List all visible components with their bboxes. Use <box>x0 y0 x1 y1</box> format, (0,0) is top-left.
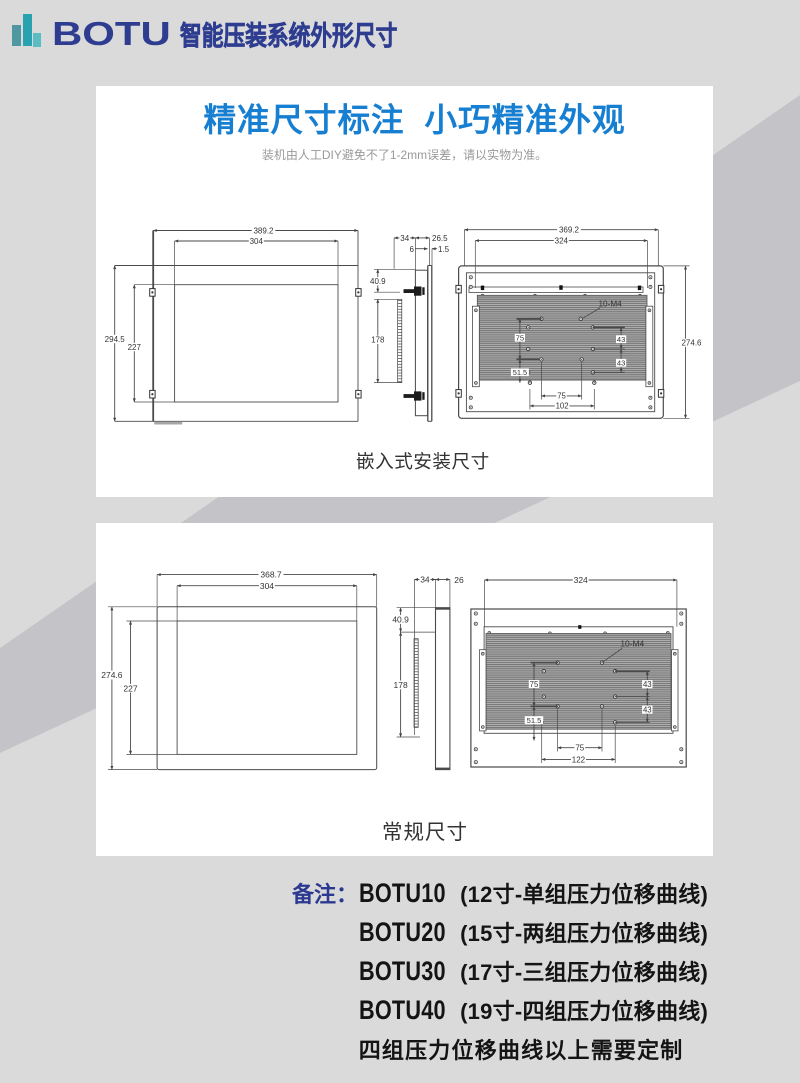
svg-text:43: 43 <box>617 359 625 368</box>
svg-text:368.7: 368.7 <box>260 570 282 580</box>
svg-text:304: 304 <box>250 237 264 246</box>
svg-text:43: 43 <box>643 680 652 689</box>
svg-text:178: 178 <box>394 680 408 690</box>
svg-text:34: 34 <box>400 234 409 243</box>
svg-text:304: 304 <box>260 581 274 591</box>
svg-text:1.5: 1.5 <box>438 245 450 254</box>
svg-text:274.6: 274.6 <box>101 670 123 680</box>
svg-text:178: 178 <box>371 336 385 345</box>
svg-text:26: 26 <box>454 575 464 585</box>
svg-text:324: 324 <box>555 236 569 245</box>
svg-text:75: 75 <box>516 333 524 342</box>
svg-text:43: 43 <box>617 335 625 344</box>
svg-text:294.5: 294.5 <box>105 335 126 344</box>
svg-text:26.5: 26.5 <box>432 234 448 243</box>
svg-text:10-M4: 10-M4 <box>599 299 623 308</box>
svg-text:324: 324 <box>574 575 588 585</box>
svg-text:51.5: 51.5 <box>527 716 542 725</box>
svg-text:43: 43 <box>643 705 652 714</box>
svg-text:10-M4: 10-M4 <box>620 639 644 649</box>
svg-text:34: 34 <box>420 575 430 585</box>
svg-text:227: 227 <box>123 683 137 693</box>
svg-text:389.2: 389.2 <box>253 226 274 235</box>
svg-text:369.2: 369.2 <box>559 226 580 235</box>
svg-text:75: 75 <box>575 744 584 753</box>
svg-text:75: 75 <box>557 392 566 401</box>
svg-text:75: 75 <box>530 680 539 689</box>
svg-text:274.6: 274.6 <box>681 339 702 348</box>
svg-text:51.5: 51.5 <box>513 368 527 377</box>
svg-text:40.9: 40.9 <box>392 615 409 625</box>
svg-text:102: 102 <box>556 402 569 411</box>
svg-text:227: 227 <box>128 343 142 352</box>
svg-text:122: 122 <box>572 755 586 764</box>
svg-text:40.9: 40.9 <box>370 277 386 286</box>
svg-text:6: 6 <box>410 245 415 254</box>
